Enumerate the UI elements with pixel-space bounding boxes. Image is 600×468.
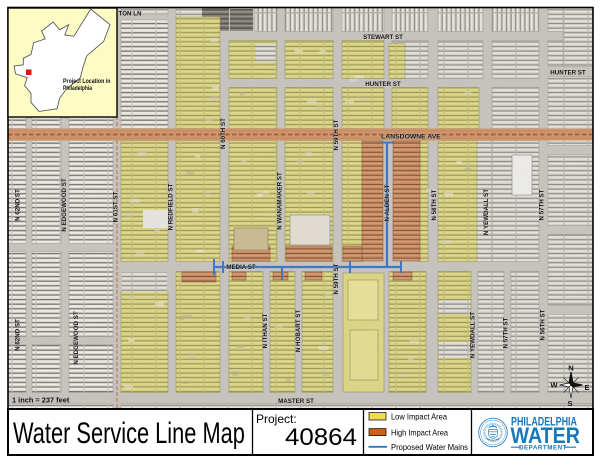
svg-text:Philadelphia: Philadelphia [63,86,93,93]
svg-text:N REDFIELD ST: N REDFIELD ST [168,183,175,230]
svg-text:N WANAMAKER ST: N WANAMAKER ST [277,172,284,230]
svg-text:N ALDEN ST: N ALDEN ST [384,184,391,221]
svg-text:Proposed Water Mains: Proposed Water Mains [391,443,468,453]
svg-text:N: N [568,364,573,373]
svg-text:MASTER ST: MASTER ST [278,398,314,405]
svg-text:TON LN: TON LN [119,11,142,18]
svg-text:N EDGEWOOD ST: N EDGEWOOD ST [73,311,80,365]
svg-text:N 59TH ST: N 59TH ST [333,263,340,294]
svg-text:STEWART ST: STEWART ST [363,34,403,41]
svg-text:N 61ST ST: N 61ST ST [113,191,120,222]
svg-text:High Impact Area: High Impact Area [391,428,448,438]
svg-text:N YEWDALL ST: N YEWDALL ST [483,189,490,235]
svg-text:S: S [567,399,572,408]
svg-text:40864: 40864 [285,424,357,451]
svg-text:N 58TH ST: N 58TH ST [431,189,438,220]
svg-text:Water Service Line Map: Water Service Line Map [13,416,245,450]
svg-text:Low Impact Area: Low Impact Area [391,412,448,422]
svg-text:1 inch = 237 feet: 1 inch = 237 feet [12,396,70,405]
svg-text:W: W [550,381,558,390]
svg-text:DEPARTMENT: DEPARTMENT [519,444,567,451]
svg-text:N 57TH ST: N 57TH ST [539,189,546,220]
svg-text:N 56TH ST: N 56TH ST [540,309,547,340]
svg-text:N 59TH ST: N 59TH ST [333,119,340,150]
svg-text:HUNTER ST: HUNTER ST [550,70,586,77]
svg-text:Project Location in: Project Location in [63,79,111,86]
svg-text:N 57TH ST: N 57TH ST [503,317,510,348]
svg-text:E: E [585,383,590,392]
svg-text:N 62ND ST: N 62ND ST [15,319,22,351]
svg-text:N YEWDALL ST: N YEWDALL ST [470,312,477,358]
svg-text:N HOBART ST: N HOBART ST [295,310,302,352]
svg-text:N ITHAN ST: N ITHAN ST [262,313,269,348]
svg-text:LANSDOWNE AVE: LANSDOWNE AVE [381,134,441,141]
svg-text:N 62ND ST: N 62ND ST [15,189,22,221]
svg-text:HUNTER ST: HUNTER ST [365,81,401,88]
svg-text:N EDGEWOOD ST: N EDGEWOOD ST [61,178,68,232]
svg-text:N 60TH ST: N 60TH ST [220,118,227,149]
svg-text:MEDIA ST: MEDIA ST [226,264,256,271]
